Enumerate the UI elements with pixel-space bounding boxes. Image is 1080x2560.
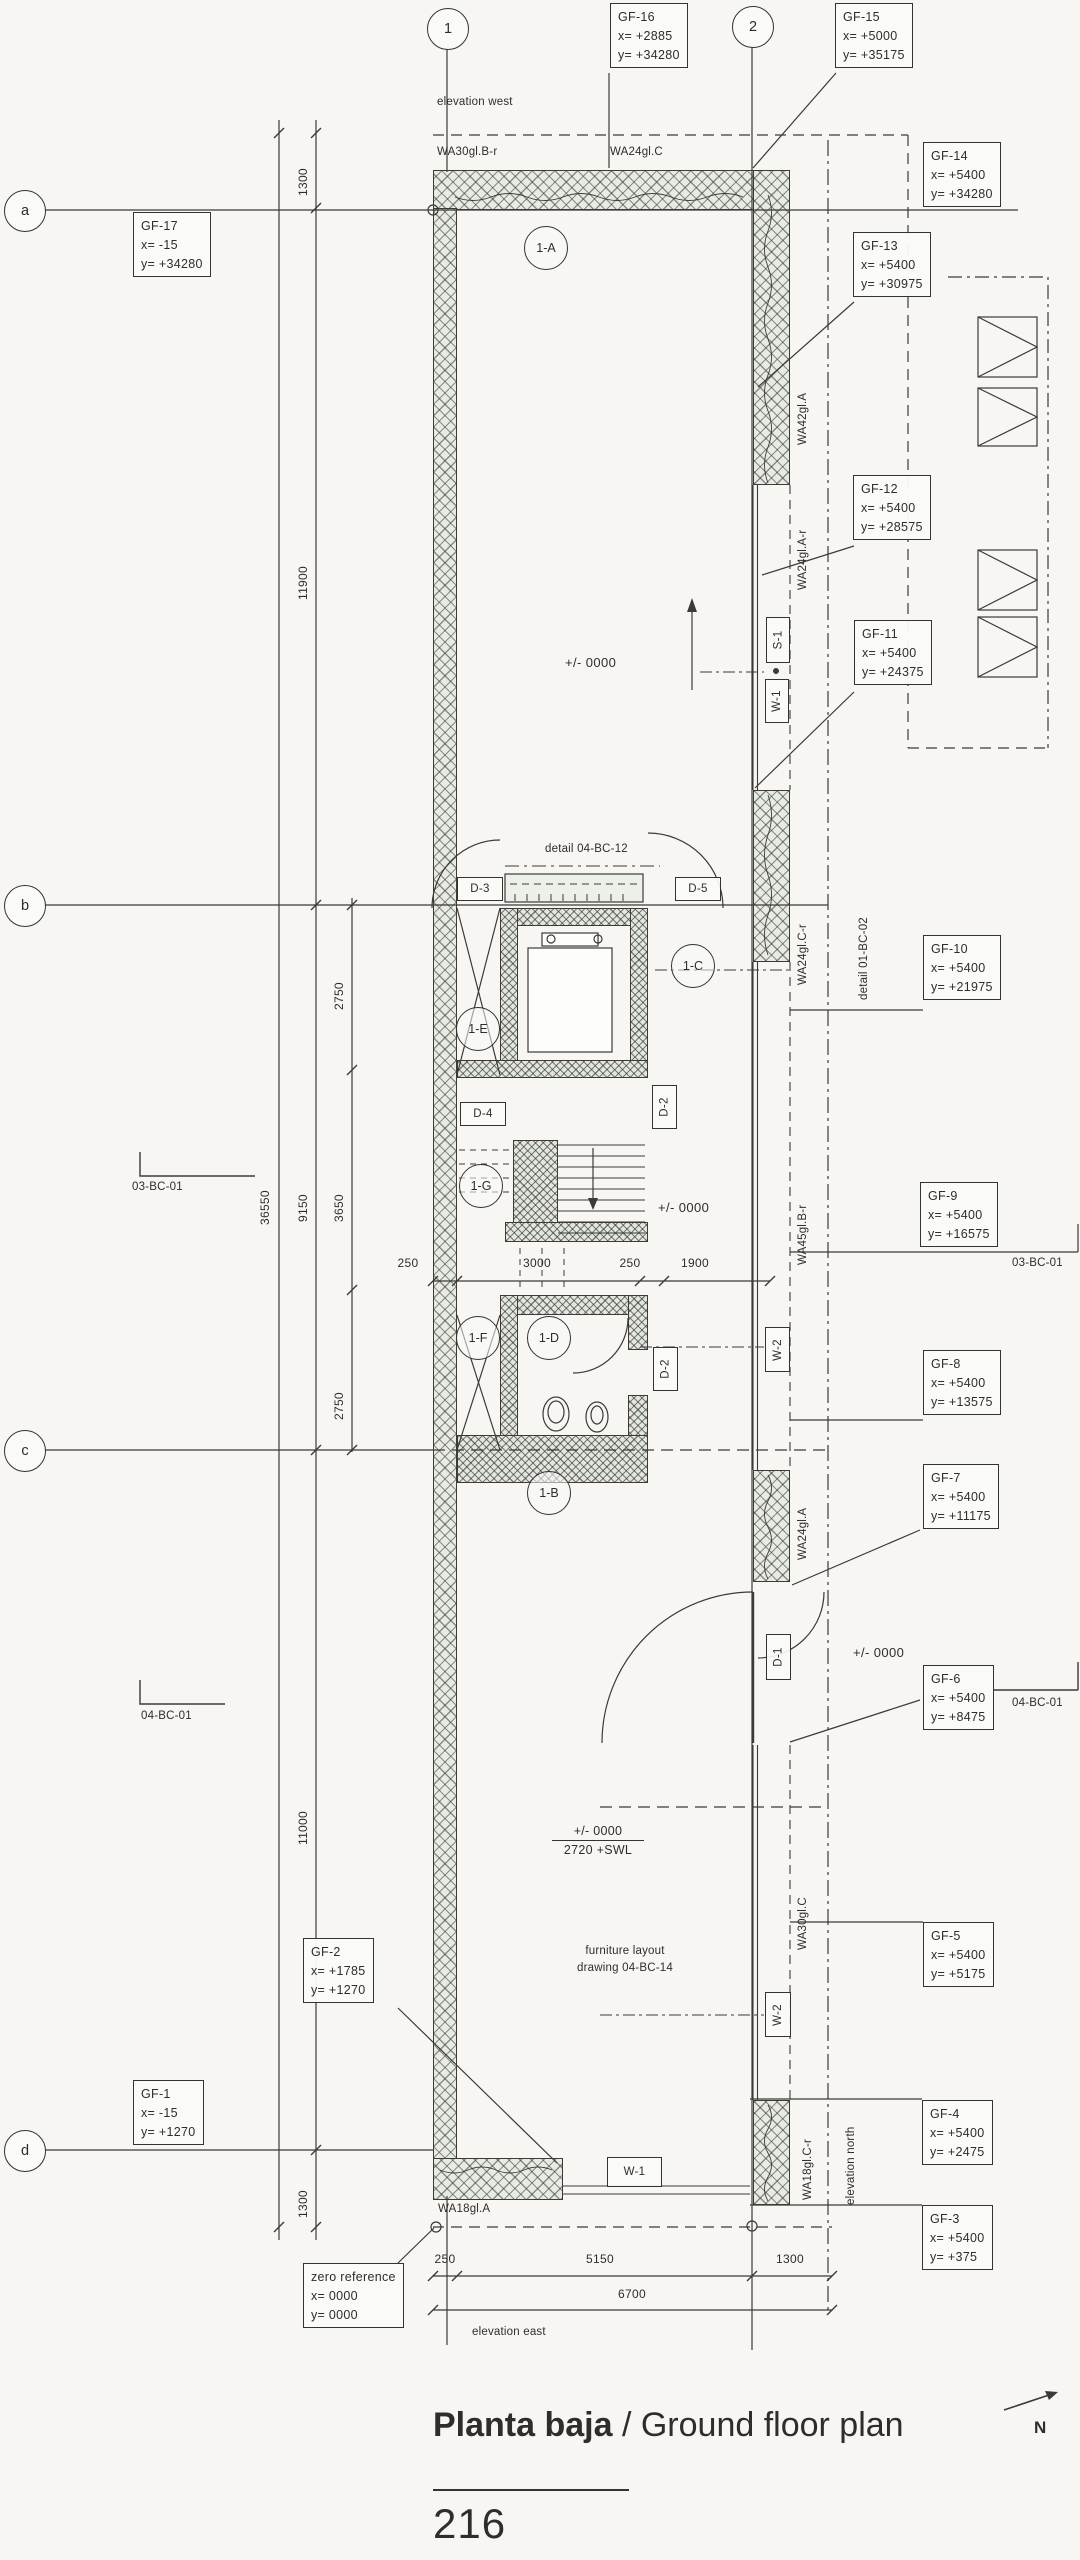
dimension-value: 250	[378, 1256, 438, 1270]
coord-marker-line: x= -15	[141, 236, 203, 255]
opening-tag-label: W-2	[772, 1339, 784, 1361]
level-marker: +/- 0000 2720 +SWL	[552, 1824, 644, 1857]
zero-reference-line: x= 0000	[311, 2287, 396, 2306]
centrelines	[600, 669, 790, 2016]
note-text: furniture layout	[560, 1945, 690, 1957]
dimension-value: 250	[600, 1256, 660, 1270]
coord-marker-line: GF-2	[311, 1943, 366, 1962]
room-tag-1-a: 1-A	[524, 226, 568, 270]
coord-marker-gf-8: GF-8x= +5400y= +13575	[923, 1350, 1001, 1415]
wall-tag: WA30gl.B-r	[437, 146, 497, 158]
note-text: elevation west	[437, 96, 513, 108]
title-separator: /	[613, 2406, 641, 2444]
coord-marker-line: x= +5400	[931, 1488, 991, 1507]
note-text: detail 01-BC-02	[858, 917, 870, 1000]
coord-marker-line: y= +2475	[930, 2143, 985, 2162]
title-spanish: Planta baja	[433, 2406, 613, 2444]
zero-reference-line: y= 0000	[311, 2306, 396, 2325]
level-swl: 2720 +SWL	[552, 1841, 644, 1857]
coord-marker-line: x= +5400	[931, 1689, 986, 1708]
coord-marker-line: GF-12	[861, 480, 923, 499]
plan-linework	[0, 0, 1080, 2560]
zero-reference-line: zero reference	[311, 2268, 396, 2287]
sill-detail	[505, 866, 660, 902]
coord-marker-line: x= +5400	[861, 499, 923, 518]
coord-marker-gf-16: GF-16x= +2885y= +34280	[610, 3, 688, 68]
coord-marker-gf-9: GF-9x= +5400y= +16575	[920, 1182, 998, 1247]
dimension-value: 6700	[602, 2287, 662, 2301]
coord-marker-line: GF-13	[861, 237, 923, 256]
coord-marker-line: GF-16	[618, 8, 680, 27]
coord-marker-line: y= +34280	[618, 46, 680, 65]
dimension-value: 5150	[570, 2252, 630, 2266]
note-text: drawing 04-BC-14	[560, 1962, 690, 1974]
coord-marker-gf-1: GF-1x= -15y= +1270	[133, 2080, 204, 2145]
dimension-value: 9150	[296, 1194, 310, 1222]
coord-marker-line: y= +5175	[931, 1965, 986, 1984]
coord-marker-line: y= +8475	[931, 1708, 986, 1727]
opening-tag-w-1: W-1	[607, 2157, 662, 2187]
coord-marker-line: y= +13575	[931, 1393, 993, 1412]
opening-tag-label: D-2	[660, 1359, 672, 1378]
coord-marker-line: y= +24375	[862, 663, 924, 682]
dimension-value: 2750	[332, 1392, 346, 1420]
coord-marker-line: GF-6	[931, 1670, 986, 1689]
page-number: 216	[433, 2500, 506, 2548]
opening-tag-label: W-1	[624, 2166, 646, 2178]
dimension-value: 3000	[507, 1256, 567, 1270]
dimension-value: 2750	[332, 982, 346, 1010]
room-tag-1-b: 1-B	[527, 1471, 571, 1515]
coord-marker-line: GF-9	[928, 1187, 990, 1206]
wall-tag: WA18gl.C-r	[802, 2139, 814, 2200]
coord-marker-line: y= +30975	[861, 275, 923, 294]
coord-marker-line: GF-11	[862, 625, 924, 644]
coord-marker-line: x= +5400	[928, 1206, 990, 1225]
note-text: elevation east	[472, 2326, 546, 2338]
coord-marker-gf-12: GF-12x= +5400y= +28575	[853, 475, 931, 540]
wall-tag: WA24gl.A-r	[797, 530, 809, 590]
level-value: +/- 0000	[552, 1824, 644, 1841]
coord-marker-line: y= +34280	[141, 255, 203, 274]
zero-reference-marker: zero referencex= 0000y= 0000	[303, 2263, 404, 2328]
opening-tag-label: D-4	[473, 1108, 492, 1120]
drawing-title: Planta baja / Ground floor plan	[433, 2406, 904, 2445]
coord-marker-line: GF-8	[931, 1355, 993, 1374]
grid-bubble-2: 2	[732, 6, 774, 48]
coord-marker-gf-2: GF-2x= +1785y= +1270	[303, 1938, 374, 2003]
note-text: 03-BC-01	[1012, 1257, 1063, 1269]
room-tag-1-e: 1-E	[456, 1007, 500, 1051]
opening-tag-w-1: W-1	[765, 679, 789, 723]
room-tag-1-d: 1-D	[527, 1316, 571, 1360]
opening-tag-d-5: D-5	[675, 877, 721, 901]
dimension-value: 3650	[332, 1194, 346, 1222]
north-label: N	[1034, 2418, 1046, 2438]
opening-tag-label: W-2	[772, 2004, 784, 2026]
opening-tag-label: D-5	[688, 883, 707, 895]
dimension-value: 250	[415, 2252, 475, 2266]
coord-marker-line: x= +5400	[930, 2124, 985, 2143]
coord-marker-line: GF-17	[141, 217, 203, 236]
opening-tag-label: D-2	[659, 1097, 671, 1116]
wall-tag: WA24gl.C	[610, 146, 663, 158]
coord-marker-line: GF-5	[931, 1927, 986, 1946]
toilet-icon	[543, 1397, 608, 1432]
level-text: +/- 0000	[853, 1645, 904, 1660]
room-tag-1-f: 1-F	[456, 1316, 500, 1360]
coord-marker-gf-10: GF-10x= +5400y= +21975	[923, 935, 1001, 1000]
coord-marker-line: y= +34280	[931, 185, 993, 204]
grid-bubble-a: a	[4, 190, 46, 232]
north-arrow-icon	[1004, 2391, 1058, 2410]
opening-tag-label: D-1	[773, 1647, 785, 1666]
note-text: 04-BC-01	[1012, 1697, 1063, 1709]
coord-marker-line: x= +5400	[931, 959, 993, 978]
coord-marker-gf-13: GF-13x= +5400y= +30975	[853, 232, 931, 297]
wall-tag: WA18gl.A	[438, 2203, 490, 2215]
coord-marker-line: y= +28575	[861, 518, 923, 537]
wall-tag: WA24gl.C-r	[797, 924, 809, 985]
coord-marker-line: GF-15	[843, 8, 905, 27]
level-text: +/- 0000	[658, 1200, 709, 1215]
opening-tag-label: W-1	[771, 690, 783, 712]
coord-marker-line: x= +5400	[861, 256, 923, 275]
coord-marker-line: GF-7	[931, 1469, 991, 1488]
opening-tag-label: S-1	[772, 631, 784, 650]
coord-marker-line: GF-3	[930, 2210, 985, 2229]
coord-marker-line: y= +21975	[931, 978, 993, 997]
coord-marker-line: x= +5400	[931, 1946, 986, 1965]
coord-marker-line: y= +35175	[843, 46, 905, 65]
coord-marker-line: x= -15	[141, 2104, 196, 2123]
coord-marker-gf-11: GF-11x= +5400y= +24375	[854, 620, 932, 685]
coord-marker-gf-14: GF-14x= +5400y= +34280	[923, 142, 1001, 207]
coord-marker-line: x= +5400	[931, 166, 993, 185]
coord-marker-line: y= +1270	[141, 2123, 196, 2142]
grid-bubble-c: c	[4, 1430, 46, 1472]
grid-bubble-d: d	[4, 2130, 46, 2172]
dimension-value: 11900	[296, 566, 310, 600]
coord-marker-line: GF-14	[931, 147, 993, 166]
title-english: Ground floor plan	[641, 2406, 904, 2444]
elevator	[528, 933, 612, 1052]
coord-marker-gf-3: GF-3x= +5400y= +375	[922, 2205, 993, 2270]
grid-bubble-b: b	[4, 885, 46, 927]
floor-plan-canvas: +/- 0000 2720 +SWL Planta baja / Ground …	[0, 0, 1080, 2560]
coord-marker-line: x= +5400	[931, 1374, 993, 1393]
grid-bubble-1: 1	[427, 8, 469, 50]
dimension-value: 1300	[760, 2252, 820, 2266]
dimension-value: 11000	[296, 1811, 310, 1845]
opening-tag-d-2: D-2	[652, 1085, 677, 1129]
coord-marker-line: GF-10	[931, 940, 993, 959]
note-text: elevation north	[845, 2127, 857, 2205]
wall-tag: WA30gl.C	[797, 1897, 809, 1950]
opening-tag-w-2: W-2	[765, 1327, 790, 1372]
wall-tag: WA45gl.B-r	[797, 1205, 809, 1265]
opening-tag-d-2: D-2	[653, 1347, 678, 1391]
coord-marker-line: x= +5000	[843, 27, 905, 46]
coord-marker-gf-4: GF-4x= +5400y= +2475	[922, 2100, 993, 2165]
coord-marker-gf-17: GF-17x= -15y= +34280	[133, 212, 211, 277]
coord-marker-line: x= +2885	[618, 27, 680, 46]
up-arrow-head	[687, 598, 697, 612]
coord-marker-gf-5: GF-5x= +5400y= +5175	[923, 1922, 994, 1987]
wall-tag: WA24gl.A	[797, 1508, 809, 1560]
opening-tag-label: D-3	[470, 883, 489, 895]
wall-tag: WA42gl.A	[797, 393, 809, 445]
note-text: 03-BC-01	[132, 1181, 183, 1193]
coord-marker-line: x= +5400	[862, 644, 924, 663]
room-tag-1-g: 1-G	[459, 1164, 503, 1208]
note-text: detail 04-BC-12	[545, 843, 628, 855]
coord-marker-line: x= +5400	[930, 2229, 985, 2248]
opening-tag-d-4: D-4	[460, 1102, 506, 1126]
glazing	[753, 485, 790, 2100]
coord-marker-line: y= +11175	[931, 1507, 991, 1526]
dimension-value: 1300	[296, 2190, 310, 2218]
opening-tag-w-2: W-2	[765, 1992, 791, 2037]
room-tag-1-c: 1-C	[671, 944, 715, 988]
dimension-value: 1300	[296, 168, 310, 196]
coord-marker-line: x= +1785	[311, 1962, 366, 1981]
dimension-value: 36550	[258, 1190, 272, 1225]
page-number-rule	[433, 2489, 629, 2491]
opening-tag-s-1: S-1	[766, 617, 790, 663]
coord-marker-line: GF-1	[141, 2085, 196, 2104]
coord-marker-line: y= +1270	[311, 1981, 366, 2000]
coord-marker-line: y= +16575	[928, 1225, 990, 1244]
coord-marker-line: GF-4	[930, 2105, 985, 2124]
coord-marker-gf-7: GF-7x= +5400y= +11175	[923, 1464, 999, 1529]
note-text: 04-BC-01	[141, 1710, 192, 1722]
opening-tag-d-3: D-3	[457, 877, 503, 901]
dimension-value: 1900	[665, 1256, 725, 1270]
opening-tag-d-1: D-1	[766, 1634, 791, 1680]
coord-marker-gf-15: GF-15x= +5000y= +35175	[835, 3, 913, 68]
level-text: +/- 0000	[565, 655, 616, 670]
coord-marker-line: y= +375	[930, 2248, 985, 2267]
coord-marker-gf-6: GF-6x= +5400y= +8475	[923, 1665, 994, 1730]
window-symbol-icons	[978, 317, 1037, 677]
